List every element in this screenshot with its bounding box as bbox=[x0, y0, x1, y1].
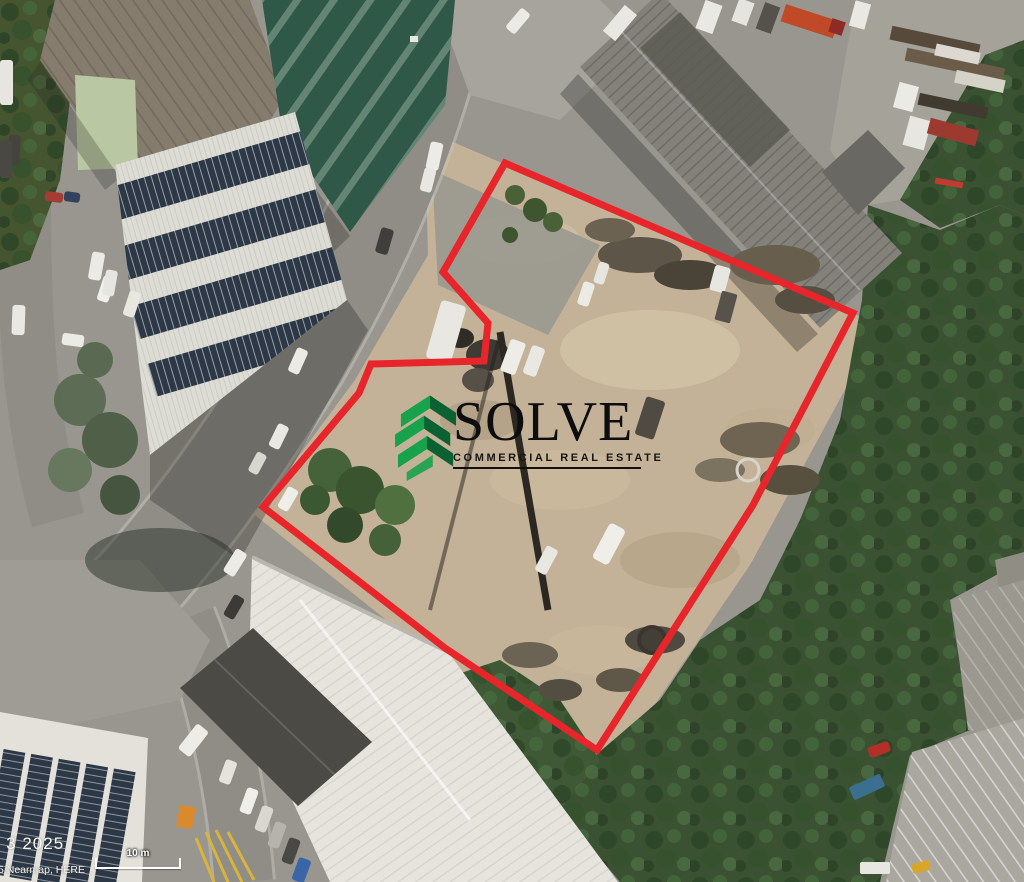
aerial-map-viewport: SOLVE COMMERCIAL REAL ESTATE – 3 2025 5 … bbox=[0, 0, 1024, 882]
brand-wordmark: SOLVE bbox=[453, 397, 663, 447]
scale-bar: 10 m bbox=[95, 848, 181, 869]
tagline-underline bbox=[453, 467, 641, 469]
capture-date-label: – 3 2025 bbox=[0, 834, 64, 854]
brand-tagline: COMMERCIAL REAL ESTATE bbox=[453, 452, 663, 464]
scale-bar-rule bbox=[95, 858, 181, 869]
imagery-attribution: 5 Nearmap, HERE bbox=[0, 864, 85, 876]
solve-logo: SOLVE COMMERCIAL REAL ESTATE bbox=[383, 391, 653, 481]
